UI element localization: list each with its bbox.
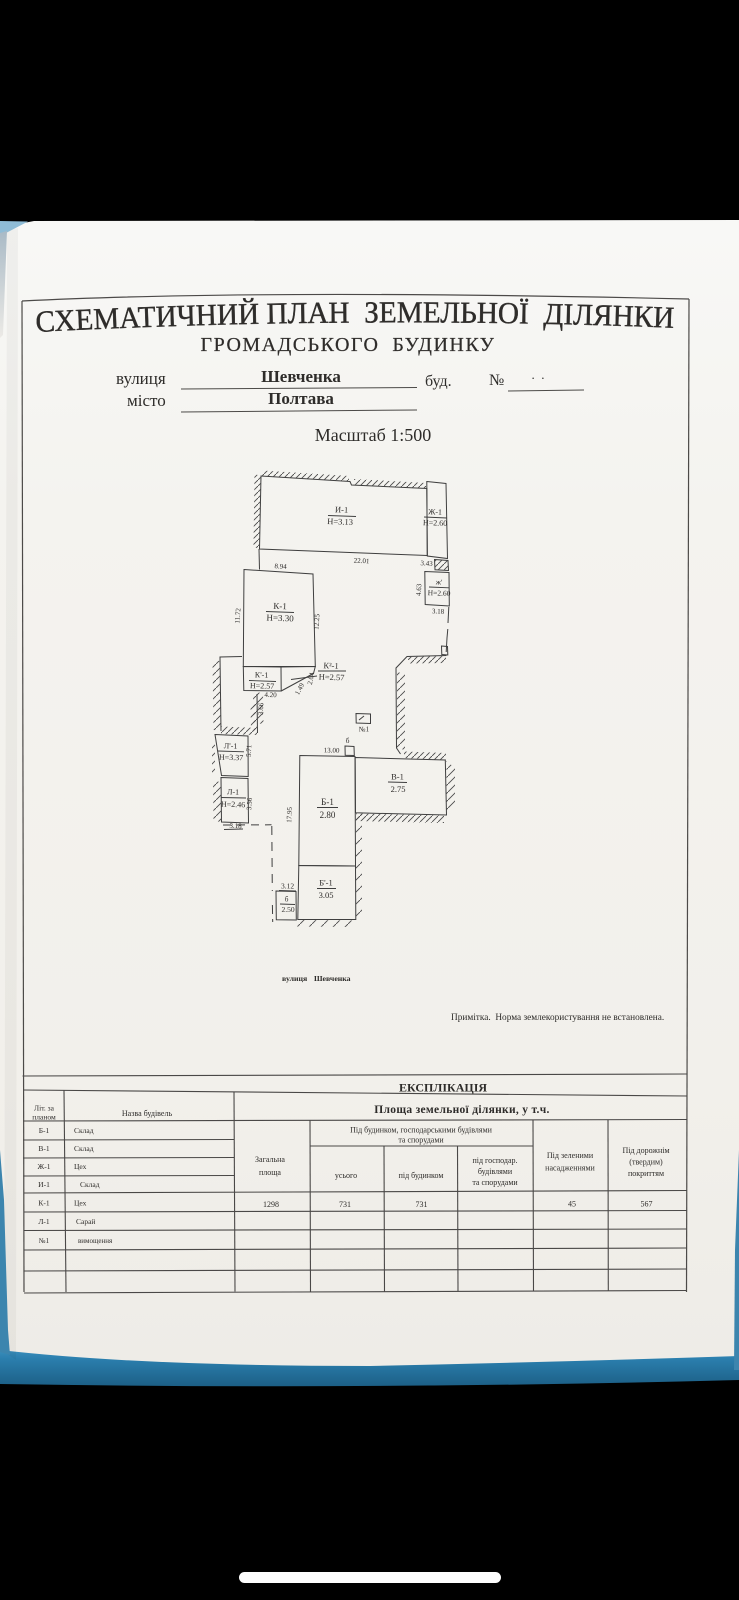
svg-text:площа: площа (259, 1168, 281, 1177)
svg-text:3.18: 3.18 (229, 822, 242, 830)
svg-text:Л-1: Л-1 (227, 787, 239, 796)
svg-text:вимощення: вимощення (78, 1237, 113, 1245)
svg-text:Назва будівель: Назва будівель (122, 1109, 173, 1118)
svg-text:Н=2.57: Н=2.57 (250, 681, 275, 691)
svg-text:12.25: 12.25 (312, 613, 321, 630)
svg-text:3.12: 3.12 (281, 882, 294, 891)
svg-text:Площа земельної ділянки, у т.: Площа земельної ділянки, у т.ч. (374, 1104, 549, 1116)
svg-text:ГРОМАДСЬКОГО БУДИНКУ: ГРОМАДСЬКОГО БУДИНКУ (201, 334, 496, 356)
svg-text:Н=3.30: Н=3.30 (266, 613, 294, 624)
svg-text:(твердим): (твердим) (629, 1158, 663, 1167)
svg-text:Загальна: Загальна (255, 1155, 285, 1164)
svg-text:4.20: 4.20 (264, 691, 277, 699)
svg-text:усього: усього (335, 1171, 357, 1180)
svg-text:місто: місто (127, 391, 166, 410)
svg-text:В-1: В-1 (391, 772, 404, 782)
svg-text:2.80: 2.80 (320, 810, 336, 820)
svg-text:Примітка. Норма землекористув: Примітка. Норма землекористування не вст… (451, 1013, 664, 1023)
svg-text:Під дорожнім: Під дорожнім (622, 1146, 669, 1155)
svg-text:вулиця: вулиця (282, 974, 308, 983)
svg-text:2.50: 2.50 (281, 905, 294, 914)
svg-text:та спорудами: та спорудами (472, 1178, 518, 1187)
svg-text:Цех: Цех (74, 1162, 87, 1171)
svg-text:К-1: К-1 (273, 601, 287, 611)
svg-text:№: № (489, 372, 504, 389)
svg-text:Б'-1: Б'-1 (319, 878, 333, 888)
svg-text:Цех: Цех (74, 1199, 87, 1208)
svg-text:К'-1: К'-1 (255, 670, 269, 679)
svg-text:насадженнями: насадженнями (545, 1164, 595, 1173)
svg-text:б: б (346, 736, 350, 745)
svg-text:Н=3.37: Н=3.37 (219, 753, 244, 763)
svg-text:ж': ж' (435, 577, 443, 586)
svg-text:Шевченка: Шевченка (261, 367, 341, 386)
svg-text:731: 731 (416, 1200, 428, 1209)
svg-text:Н=2.46: Н=2.46 (221, 800, 246, 810)
svg-text:Сарай: Сарай (76, 1217, 95, 1226)
svg-text:будівлями: будівлями (478, 1167, 513, 1176)
svg-text:Ж-1: Ж-1 (38, 1162, 51, 1171)
svg-text:В-1: В-1 (38, 1144, 50, 1153)
svg-text:И-1: И-1 (38, 1180, 50, 1189)
svg-text:Б-1: Б-1 (321, 797, 334, 807)
svg-text:вулиця: вулиця (116, 369, 166, 388)
svg-text:Л'-1: Л'-1 (224, 741, 238, 750)
svg-text:Н=3.13: Н=3.13 (327, 516, 353, 527)
svg-text:22.01: 22.01 (354, 557, 371, 566)
svg-text:Шевченка: Шевченка (314, 974, 351, 983)
svg-text:1298: 1298 (263, 1200, 279, 1209)
svg-text:Н=2.60: Н=2.60 (428, 588, 451, 598)
svg-text:731: 731 (339, 1200, 351, 1209)
svg-text:№1: №1 (39, 1237, 50, 1245)
svg-text:Б-1: Б-1 (39, 1126, 50, 1135)
svg-text:планом: планом (32, 1113, 56, 1122)
svg-text:3.56: 3.56 (245, 797, 254, 810)
svg-text:Л-1: Л-1 (38, 1217, 50, 1226)
svg-text:45: 45 (568, 1200, 576, 1209)
svg-text:3.05: 3.05 (319, 890, 334, 900)
svg-text:Під будинком, господарськими б: Під будинком, господарськими будівлями (350, 1126, 493, 1135)
svg-text:Полтава: Полтава (268, 389, 334, 408)
svg-text:3.66: 3.66 (257, 702, 266, 715)
svg-text:Склад: Склад (74, 1144, 94, 1153)
svg-text:3.43: 3.43 (420, 559, 433, 568)
svg-text:під господар.: під господар. (472, 1156, 517, 1165)
svg-text:К-1: К-1 (38, 1199, 50, 1208)
svg-text:К²-1: К²-1 (323, 660, 339, 671)
svg-text:3.18: 3.18 (432, 607, 445, 615)
svg-text:ЕКСПЛІКАЦІЯ: ЕКСПЛІКАЦІЯ (399, 1081, 487, 1095)
svg-text:б: б (285, 895, 289, 904)
svg-text:4.63: 4.63 (415, 583, 424, 596)
svg-text:17.95: 17.95 (285, 806, 294, 823)
svg-text:Масштаб 1:500: Масштаб 1:500 (315, 425, 432, 445)
svg-text:5.71: 5.71 (245, 744, 254, 757)
svg-text:та спорудами: та спорудами (398, 1136, 444, 1145)
svg-text:Склад: Склад (74, 1126, 94, 1135)
svg-text:И-1: И-1 (335, 504, 349, 514)
svg-text:Під зеленими: Під зеленими (547, 1151, 594, 1160)
svg-text:буд.: буд. (425, 373, 452, 390)
svg-text:Н=2.60: Н=2.60 (423, 518, 448, 528)
svg-text:під будинком: під будинком (399, 1171, 444, 1180)
svg-text:567: 567 (641, 1200, 653, 1209)
svg-text:2.75: 2.75 (391, 784, 406, 794)
svg-text:покриттям: покриттям (628, 1169, 664, 1178)
svg-text:№1: №1 (359, 726, 370, 734)
svg-text:Склад: Склад (80, 1180, 100, 1189)
svg-text:Н=2.57: Н=2.57 (319, 672, 345, 683)
svg-text:Ж-1: Ж-1 (428, 507, 442, 516)
svg-text:. .: . . (532, 367, 545, 382)
svg-text:13.00: 13.00 (324, 746, 341, 755)
svg-text:Літ. за: Літ. за (34, 1104, 55, 1113)
svg-text:8.94: 8.94 (274, 562, 287, 571)
svg-text:11.72: 11.72 (233, 607, 242, 624)
